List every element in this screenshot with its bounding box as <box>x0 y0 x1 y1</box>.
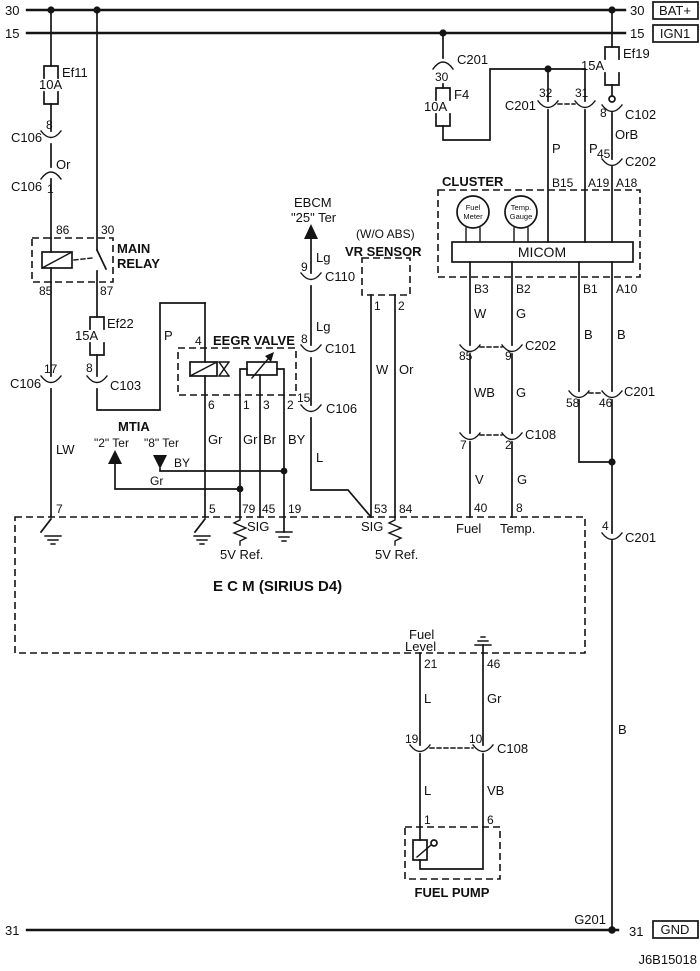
gnd-tag: GND <box>661 922 690 937</box>
eegr-valve-icon <box>219 362 229 376</box>
ecm-pin-8: 8 <box>516 501 523 515</box>
fuse-ef11-name: Ef11 <box>62 65 88 80</box>
connector-arc-c201-30 <box>433 62 453 69</box>
ecm-switch-blade-5 <box>195 519 205 532</box>
ebcm-label-line1: EBCM <box>294 195 332 210</box>
connector-c202-45-pin: 45 <box>597 147 611 161</box>
wire-label-l: L <box>316 450 323 465</box>
wire-label-l-pump: L <box>424 783 431 798</box>
connector-c201-58-pin: 58 <box>566 396 580 410</box>
fuel-sender-wiper <box>417 845 431 857</box>
eegr-box <box>178 348 296 395</box>
rail-30-left-label: 30 <box>5 3 19 18</box>
bat-tag: BAT+ <box>659 3 691 18</box>
vr-title: VR SENSOR <box>345 244 422 259</box>
wire-eegr-pin2 <box>277 369 284 517</box>
wire-label-p-b15: P <box>552 141 561 156</box>
relay-name-line1: MAIN <box>117 241 150 256</box>
connector-c106-1-name: C106 <box>11 179 42 194</box>
wiring-diagram-page: 30 15 31 30 15 31 BAT+ IGN1 GND G201 J6B… <box>0 0 700 971</box>
wire-l-sig <box>311 418 371 517</box>
connector-c103-name: C103 <box>110 378 141 393</box>
ecm-pin-21: 21 <box>424 657 438 671</box>
connector-c106-17-pin: 17 <box>44 362 58 376</box>
eegr-pot-icon <box>247 362 277 375</box>
connector-c106-17-name: C106 <box>10 376 41 391</box>
ecm-pin-7: 7 <box>56 502 63 516</box>
resistor-icon-79 <box>234 517 246 545</box>
junction-dots <box>47 6 615 933</box>
eegr-pin-4: 4 <box>195 334 202 348</box>
connector-c110-name: C110 <box>325 269 355 284</box>
connector-arc-c106-15 <box>301 405 321 412</box>
mtia-ter8-label: "8" Ter <box>144 436 179 450</box>
connector-arc-c201-4 <box>602 533 622 540</box>
connector-c103-pin: 8 <box>86 361 93 375</box>
cluster-pin-a19: A19 <box>588 176 610 190</box>
connector-c101-name: C101 <box>325 341 356 356</box>
eegr-pin-1: 1 <box>243 398 250 412</box>
ecm-fuel-level-label2: Level <box>405 639 436 654</box>
vr-sensor: (W/O ABS) VR SENSOR 1 2 W Or <box>345 227 422 517</box>
pump-pin-6: 6 <box>487 813 494 827</box>
ground-icon <box>194 536 210 544</box>
arrow-down-icon <box>153 455 167 469</box>
connector-c102-name: C102 <box>625 107 656 122</box>
ecm-fuel-label: Fuel <box>456 521 481 536</box>
connector-arc-c103 <box>87 376 107 383</box>
branch-lw: 17 C106 LW 7 <box>10 282 75 544</box>
ground-icon <box>276 532 292 541</box>
eegr-solenoid-diagonal <box>190 362 217 376</box>
fuel-sender-internal-wire <box>420 827 483 869</box>
wire-label-v: V <box>475 472 484 487</box>
connector-c110-pin: 9 <box>301 260 308 274</box>
wire-label-b-gnd: B <box>618 722 627 737</box>
ecm-pin-46: 46 <box>487 657 501 671</box>
connector-c106-8-pin: 8 <box>46 118 53 132</box>
branch-ef11: Ef11 10A 8 C106 Or 1 C106 <box>11 10 88 238</box>
wire-label-p: P <box>164 328 173 343</box>
ecm: E C M (SIRIUS D4) 5 79 45 19 53 84 40 8 … <box>15 501 585 671</box>
temp-gauge-label1: Temp. <box>511 203 531 212</box>
pump-pin-1: 1 <box>424 813 431 827</box>
wiring-diagram: 30 15 31 30 15 31 BAT+ IGN1 GND G201 J6B… <box>0 0 700 971</box>
ecm-temp-label: Temp. <box>500 521 535 536</box>
fuel-pump-branch: L Gr 19 10 C108 L VB 1 6 FUEL PUMP <box>405 653 528 900</box>
mtia-ter2-label: "2" Ter <box>94 436 129 450</box>
wire-label-or-vr: Or <box>399 362 414 377</box>
connector-c106-15-pin: 15 <box>297 391 311 405</box>
gauge-leads <box>466 228 528 242</box>
connector-c201-46-pin: 46 <box>599 396 613 410</box>
vr-note: (W/O ABS) <box>356 227 415 241</box>
wire-label-lg-1: Lg <box>316 250 330 265</box>
connector-c202-9-pin: 9 <box>505 349 512 363</box>
ecm-5v-ref-left: 5V Ref. <box>220 547 263 562</box>
connector-c201-30-name: C201 <box>457 52 488 67</box>
diagram-code: J6B15018 <box>638 952 697 967</box>
eegr-title: EEGR VALVE <box>213 333 295 348</box>
connector-c108-7-2-name: C108 <box>525 427 556 442</box>
connector-pin-circle <box>609 96 615 102</box>
eegr-pin-3: 3 <box>263 398 270 412</box>
wire-label-b-b1: B <box>584 327 593 342</box>
ecm-pin-19: 19 <box>288 502 302 516</box>
ecm-pin-84: 84 <box>399 502 413 516</box>
vr-pin-1: 1 <box>374 299 381 313</box>
wire-label-lw: LW <box>56 442 75 457</box>
ecm-pin-79: 79 <box>242 502 256 516</box>
micom-label: MICOM <box>518 244 566 260</box>
fuse-f4-name: F4 <box>454 87 469 102</box>
wire-label-br-3: Br <box>263 432 277 447</box>
connector-arc-c106-1 <box>41 172 61 179</box>
relay-pin-86: 86 <box>56 223 70 237</box>
rail-30-right-label: 30 <box>630 3 644 18</box>
connector-c201-32-pin: 32 <box>539 86 553 100</box>
fuse-ef22-name: Ef22 <box>107 316 134 331</box>
fuse-ef22-rating: 15A <box>75 328 98 343</box>
connector-c201-31-pin: 31 <box>575 86 589 100</box>
wire-label-w: W <box>376 362 389 377</box>
ecm-pin-40: 40 <box>474 501 488 515</box>
eegr-pin-6: 6 <box>208 398 215 412</box>
connector-c201-32-31-name: C201 <box>505 98 536 113</box>
cluster-ground-chain: B B 58 46 C201 4 C201 B <box>566 327 656 930</box>
fuse-f4-rating: 10A <box>424 99 447 114</box>
connector-c202-45-name: C202 <box>625 154 656 169</box>
ecm-5v-ref-right: 5V Ref. <box>375 547 418 562</box>
relay-link-dashed <box>74 258 92 260</box>
resistor-icon-84 <box>389 517 401 545</box>
wire-label-wb: WB <box>474 385 495 400</box>
mtia-title: MTIA <box>118 419 150 434</box>
wire-label-gr-46: Gr <box>487 691 502 706</box>
wire-label-by-2: BY <box>288 432 306 447</box>
wire-label-g-b2: G <box>516 306 526 321</box>
mtia-terminals: MTIA "2" Ter "8" Ter Gr BY <box>94 419 284 489</box>
rail-15-right-label: 15 <box>630 26 644 41</box>
wire-label-vb: VB <box>487 783 504 798</box>
ecm-title: E C M (SIRIUS D4) <box>213 578 342 595</box>
ecm-switch-blade-7 <box>41 519 51 532</box>
fuse-ef11-rating: 10A <box>39 77 62 92</box>
connector-c201-58-46-name: C201 <box>624 384 655 399</box>
relay-pin-30: 30 <box>101 223 115 237</box>
connector-c106-8-name: C106 <box>11 130 42 145</box>
rail-31-right-label: 31 <box>629 924 643 939</box>
ecm-sig-left: SIG <box>247 519 269 534</box>
cluster-feeds: 30 C201 F4 10A 32 31 C201 P P Ef19 15A 8… <box>424 10 656 242</box>
ecm-sig-right: SIG <box>361 519 383 534</box>
fuel-meter-label2: Meter <box>463 212 483 221</box>
ecm-pin-53: 53 <box>374 502 388 516</box>
connector-arc-c106-17 <box>41 376 61 383</box>
connector-c102-pin: 8 <box>600 106 607 120</box>
connector-c201-30-pin: 30 <box>435 70 449 84</box>
relay-switch-blade <box>97 250 106 269</box>
arrow-up-icon <box>108 450 122 464</box>
ecm-pin-5: 5 <box>209 502 216 516</box>
vr-sensor-box <box>362 258 410 295</box>
connector-c108-10-pin: 10 <box>469 732 483 746</box>
connector-c201-4-pin: 4 <box>602 519 609 533</box>
wire-label-lg-2: Lg <box>316 319 330 334</box>
connector-arc-c108-7-2 <box>460 433 522 440</box>
ign1-tag: IGN1 <box>660 26 690 41</box>
ground-icon <box>45 536 61 544</box>
vr-pin-2: 2 <box>398 299 405 313</box>
cluster-title: CLUSTER <box>442 174 504 189</box>
eegr-pin-2: 2 <box>287 398 294 412</box>
connector-c108-19-pin: 19 <box>405 732 419 746</box>
arrow-up-icon <box>304 224 318 239</box>
fuse-ef19-rating: 15A <box>581 58 604 73</box>
rail-15-left-label: 15 <box>5 26 19 41</box>
connector-c201-4-name: C201 <box>625 530 656 545</box>
connector-c108-19-10-name: C108 <box>497 741 528 756</box>
connector-c101-pin: 8 <box>301 332 308 346</box>
wire-label-b-a10: B <box>617 327 626 342</box>
cluster-pin-a10: A10 <box>616 282 638 296</box>
wire-label-or: Or <box>56 157 71 172</box>
cluster-pin-b2: B2 <box>516 282 531 296</box>
ebcm-label-line2: "25" Ter <box>291 210 337 225</box>
branch-p-eegr: Ef22 15A 8 C103 P <box>75 303 205 410</box>
wire-label-gr-6: Gr <box>208 432 223 447</box>
connector-c202-85-9-name: C202 <box>525 338 556 353</box>
wire-label-w-b3: W <box>474 306 487 321</box>
fuel-meter-label1: Fuel <box>466 203 481 212</box>
rail-31-left-label: 31 <box>5 923 19 938</box>
ecm-pin-45: 45 <box>262 502 276 516</box>
fuse-ef19-icon <box>605 47 619 85</box>
temp-gauge-label2: Gauge <box>510 212 533 221</box>
fuel-pump-title: FUEL PUMP <box>415 885 490 900</box>
relay-coil-diagonal <box>42 252 72 268</box>
wire-label-l-21: L <box>424 691 431 706</box>
relay-pin-87: 87 <box>100 284 114 298</box>
wire-label-gr-ter: Gr <box>150 474 163 488</box>
wire-label-by-ter: BY <box>174 456 190 470</box>
wire-label-g-mid: G <box>516 385 526 400</box>
connector-c106-15-name: C106 <box>326 401 357 416</box>
cluster-pin-b15: B15 <box>552 176 574 190</box>
fuel-sender-wiper-pivot <box>431 840 437 846</box>
relay-name-line2: RELAY <box>117 256 160 271</box>
wire-label-g-low: G <box>517 472 527 487</box>
connector-c108-7-pin: 7 <box>460 438 467 452</box>
g201-label: G201 <box>574 912 606 927</box>
wire-label-orb: OrB <box>615 127 638 142</box>
wire-label-gr-1: Gr <box>243 432 258 447</box>
cluster-pin-a18: A18 <box>616 176 638 190</box>
fuse-ef19-name: Ef19 <box>623 46 650 61</box>
cluster-pin-b1: B1 <box>583 282 598 296</box>
gauge-signal-chains: W G 85 9 C202 WB G 7 2 C108 V G <box>459 306 556 517</box>
ground-icon <box>475 637 491 645</box>
cluster-pin-b3: B3 <box>474 282 489 296</box>
connector-c108-2-pin: 2 <box>505 438 512 452</box>
